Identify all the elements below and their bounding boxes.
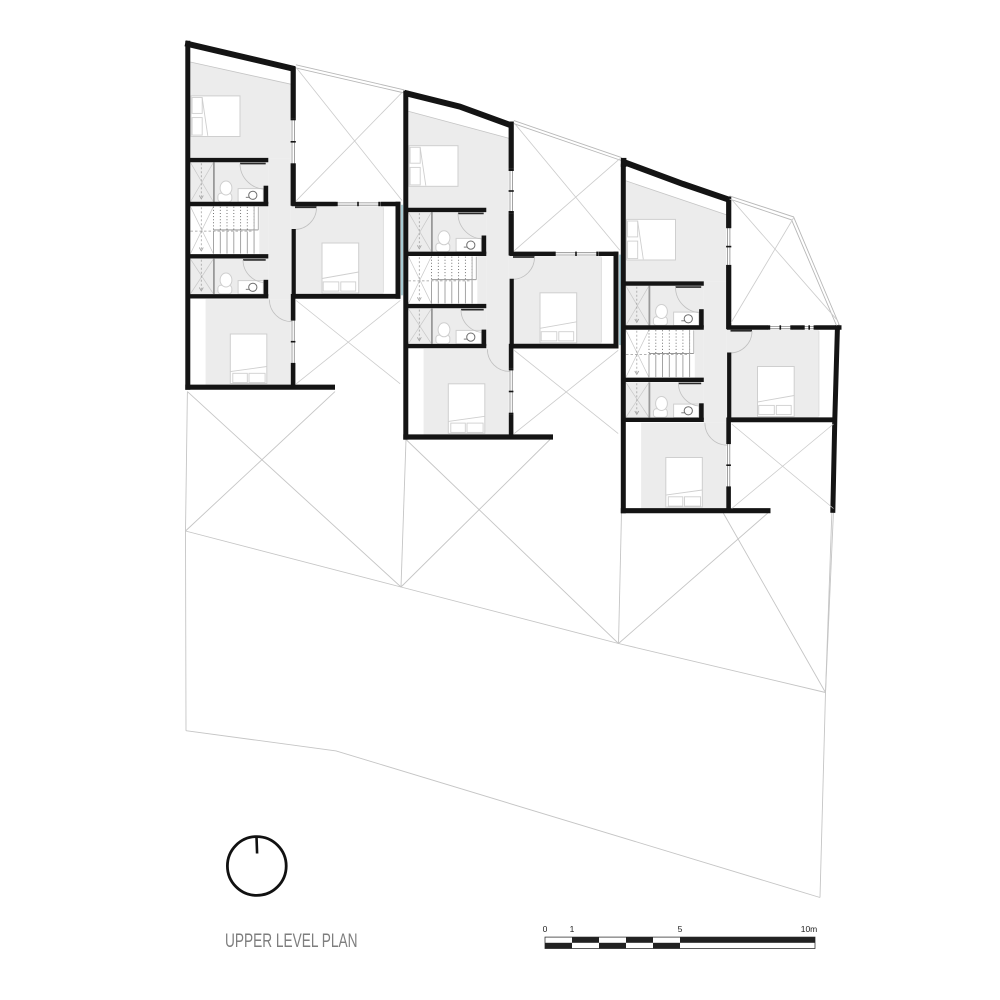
svg-text:10m: 10m [801, 924, 818, 934]
svg-text:1: 1 [570, 924, 575, 934]
svg-text:UPPER LEVEL PLAN: UPPER LEVEL PLAN [225, 930, 358, 952]
svg-text:0: 0 [543, 924, 548, 934]
svg-text:5: 5 [678, 924, 683, 934]
